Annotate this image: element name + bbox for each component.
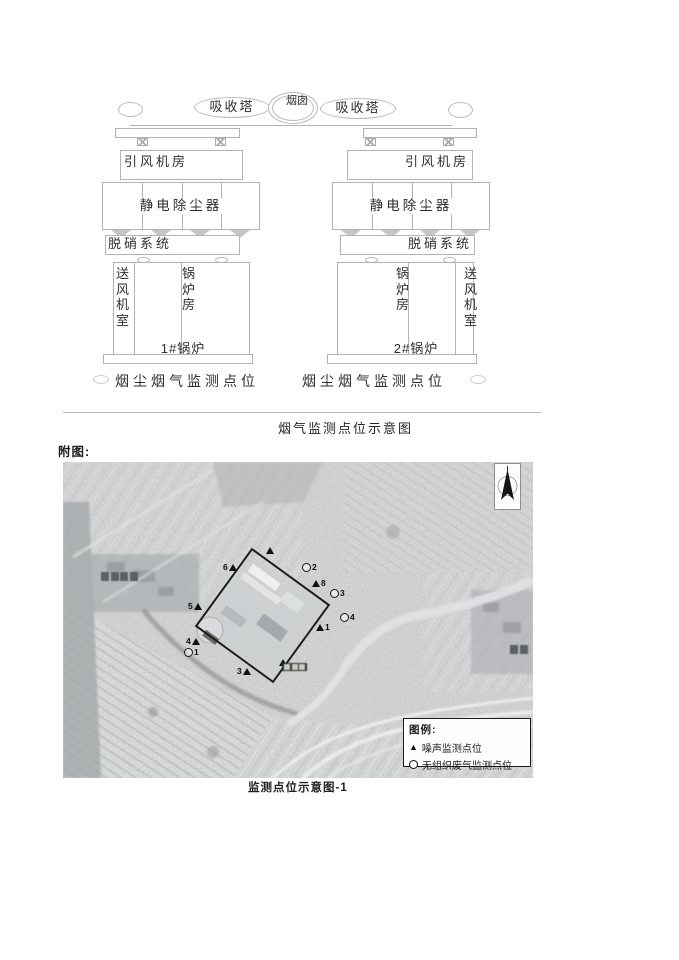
circle-marker-icon [340, 613, 349, 622]
gas-point-3: 3 [330, 589, 345, 598]
triangle-marker-icon [316, 624, 324, 631]
fan-room-right-label: 引风机房 [405, 155, 469, 170]
attachment-label: 附图: [58, 441, 90, 460]
boiler-divider [134, 263, 135, 361]
boiler-house-left-label: 锅炉房 [181, 266, 196, 313]
absorber-left-label: 吸收塔 [209, 100, 254, 115]
fan-icon [365, 138, 376, 146]
triangle-marker-icon [194, 603, 202, 610]
north-arrow [494, 463, 521, 510]
denox-left-label: 脱硝系统 [108, 237, 172, 252]
triangle-marker-icon [192, 638, 200, 645]
noise-point-1: 1 [316, 623, 330, 632]
gas-point-4: 4 [340, 613, 355, 622]
monitor-point-ellipse [470, 375, 486, 384]
boiler-house-right-label: 锅炉房 [395, 266, 410, 313]
place-name-smudge [510, 645, 528, 654]
foundation-right [327, 354, 477, 364]
map-legend: 图例: ▲ 噪声监测点位 无组织废气监测点位 [403, 718, 531, 767]
figure2-caption: 监测点位示意图-1 [248, 779, 348, 795]
noise-point-3: 3 [237, 667, 251, 676]
circle-marker-icon [184, 648, 193, 657]
esp-right: 静电除尘器 [332, 182, 490, 230]
duct-left [115, 128, 240, 138]
flue-pipe-line [130, 125, 452, 126]
triangle-marker-icon [229, 564, 237, 571]
noise-point-6: 6 [223, 563, 237, 572]
triangle-marker-icon [312, 580, 320, 587]
section-divider [63, 412, 541, 413]
boiler-divider [455, 263, 456, 361]
fan-room-right: 引风机房 [347, 150, 473, 180]
north-arrow-icon [495, 464, 520, 509]
denox-right: 脱硝系统 [340, 235, 475, 255]
noise-point-5: 5 [188, 602, 202, 611]
plant-name-smudge [282, 663, 307, 671]
figure1-caption: 烟气监测点位示意图 [278, 418, 413, 437]
gas-point-1: 1 [184, 648, 199, 657]
monitor-point-ellipse [93, 375, 109, 384]
stack-ellipse-left [118, 102, 143, 117]
gas-point-2: 2 [302, 563, 317, 572]
noise-point-4: 4 [186, 637, 200, 646]
esp-left-label: 静电除尘器 [138, 198, 225, 214]
fan-room-left: 引风机房 [120, 150, 243, 180]
noise-point [266, 547, 274, 554]
monitoring-map: 6 2 8 3 4 1 3 4 5 1 图例: [63, 462, 533, 778]
triangle-marker-icon: ▲ [409, 743, 418, 752]
legend-item-gas: 无组织废气监测点位 [409, 757, 525, 772]
legend-title: 图例: [409, 722, 525, 737]
duct-right [363, 128, 477, 138]
esp-left: 静电除尘器 [102, 182, 260, 230]
document-page: 吸收塔 吸收塔 烟囱 引风机房 引风机房 静电除尘器 [0, 0, 679, 960]
supply-fan-room-right-label: 送风机室 [463, 266, 478, 328]
village-name-smudge [101, 572, 138, 581]
denox-left: 脱硝系统 [105, 235, 240, 255]
absorber-left: 吸收塔 [194, 97, 270, 118]
fan-icon [215, 138, 226, 146]
stack-ellipse-right [448, 102, 473, 118]
legend-gas-label: 无组织废气监测点位 [422, 757, 512, 772]
circle-marker-icon [330, 589, 339, 598]
noise-point-8: 8 [312, 579, 326, 588]
denox-right-label: 脱硝系统 [408, 237, 472, 252]
monitor-label-right: 烟尘烟气监测点位 [302, 371, 446, 391]
circle-marker-icon [409, 760, 418, 769]
fan-room-left-label: 引风机房 [124, 155, 188, 170]
legend-noise-label: 噪声监测点位 [422, 740, 482, 755]
chimney-label: 烟囱 [286, 95, 300, 107]
fan-icon [443, 138, 454, 146]
absorber-right-label: 吸收塔 [335, 101, 380, 116]
esp-right-label: 静电除尘器 [368, 198, 455, 214]
legend-item-noise: ▲ 噪声监测点位 [409, 740, 525, 755]
circle-marker-icon [302, 563, 311, 572]
flue-gas-diagram: 吸收塔 吸收塔 烟囱 引风机房 引风机房 静电除尘器 [90, 88, 492, 394]
monitor-label-left: 烟尘烟气监测点位 [115, 371, 259, 391]
supply-fan-room-left-label: 送风机室 [115, 266, 130, 328]
foundation-left [103, 354, 253, 364]
absorber-right: 吸收塔 [320, 98, 396, 119]
triangle-marker-icon [243, 668, 251, 675]
triangle-marker-icon [266, 547, 274, 554]
fan-icon [137, 138, 148, 146]
